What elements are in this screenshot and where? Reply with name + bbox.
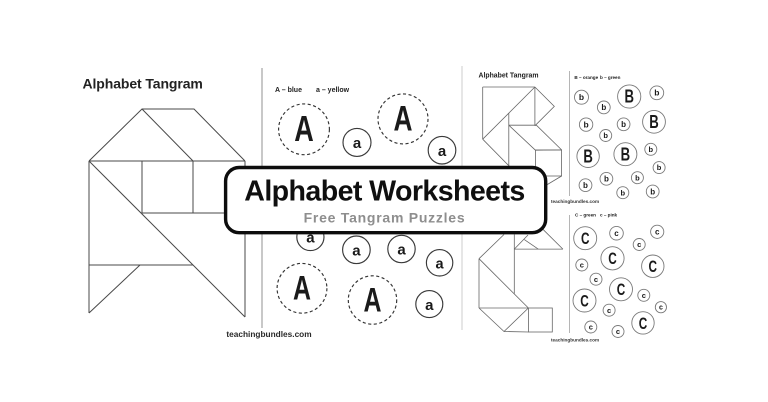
svg-text:B: B — [624, 87, 634, 107]
svg-text:C: C — [617, 280, 626, 299]
svg-text:B: B — [621, 144, 631, 164]
svg-text:a: a — [397, 242, 406, 259]
svg-text:c – pink: c – pink — [600, 213, 618, 218]
svg-text:b: b — [603, 131, 608, 140]
svg-text:B: B — [583, 147, 593, 167]
svg-text:c: c — [580, 261, 584, 270]
svg-text:b: b — [654, 88, 659, 98]
svg-text:c: c — [659, 305, 663, 312]
svg-text:C: C — [639, 314, 648, 333]
svg-text:c: c — [614, 229, 619, 238]
svg-text:a: a — [353, 135, 362, 152]
svg-text:A – blue: A – blue — [275, 87, 302, 94]
svg-text:b: b — [657, 163, 662, 172]
svg-text:C – green: C – green — [575, 213, 596, 218]
svg-text:b: b — [649, 145, 654, 154]
svg-text:teachingbundles.com: teachingbundles.com — [226, 329, 311, 339]
svg-text:Alphabet Tangram: Alphabet Tangram — [479, 73, 539, 80]
svg-text:B – orange: B – orange — [574, 75, 598, 80]
svg-text:Free Tangram Puzzles: Free Tangram Puzzles — [304, 209, 466, 225]
svg-text:teachingbundles.com: teachingbundles.com — [551, 199, 599, 204]
svg-text:C: C — [649, 257, 658, 276]
svg-text:A: A — [294, 108, 314, 149]
svg-text:b – green: b – green — [600, 75, 621, 80]
svg-text:b: b — [635, 173, 640, 182]
svg-text:c: c — [607, 306, 611, 315]
svg-text:teachingbundles.com: teachingbundles.com — [551, 337, 599, 342]
svg-text:a: a — [436, 256, 445, 272]
svg-text:Alphabet Worksheets: Alphabet Worksheets — [244, 176, 524, 208]
svg-text:c: c — [655, 228, 660, 237]
svg-text:c: c — [637, 240, 641, 249]
svg-text:C: C — [581, 229, 590, 248]
svg-text:C: C — [608, 249, 617, 268]
svg-text:a – yellow: a – yellow — [316, 87, 350, 94]
svg-text:b: b — [583, 120, 588, 130]
svg-text:c: c — [589, 323, 593, 332]
svg-text:a: a — [438, 143, 447, 160]
svg-text:b: b — [650, 187, 655, 196]
svg-text:b: b — [621, 120, 626, 129]
svg-text:B: B — [649, 112, 659, 132]
svg-text:b: b — [601, 103, 606, 112]
svg-text:A: A — [364, 281, 382, 319]
svg-text:c: c — [594, 275, 598, 284]
svg-text:a: a — [425, 297, 434, 314]
svg-text:b: b — [579, 92, 584, 102]
svg-text:c: c — [616, 327, 620, 336]
svg-text:c: c — [642, 291, 646, 300]
svg-text:a: a — [352, 243, 361, 260]
svg-text:A: A — [394, 99, 413, 138]
svg-text:b: b — [583, 181, 588, 190]
svg-text:b: b — [621, 188, 626, 197]
svg-text:Alphabet Tangram: Alphabet Tangram — [83, 76, 203, 92]
svg-text:b: b — [604, 175, 609, 184]
svg-text:A: A — [293, 270, 311, 308]
svg-text:C: C — [580, 291, 589, 310]
